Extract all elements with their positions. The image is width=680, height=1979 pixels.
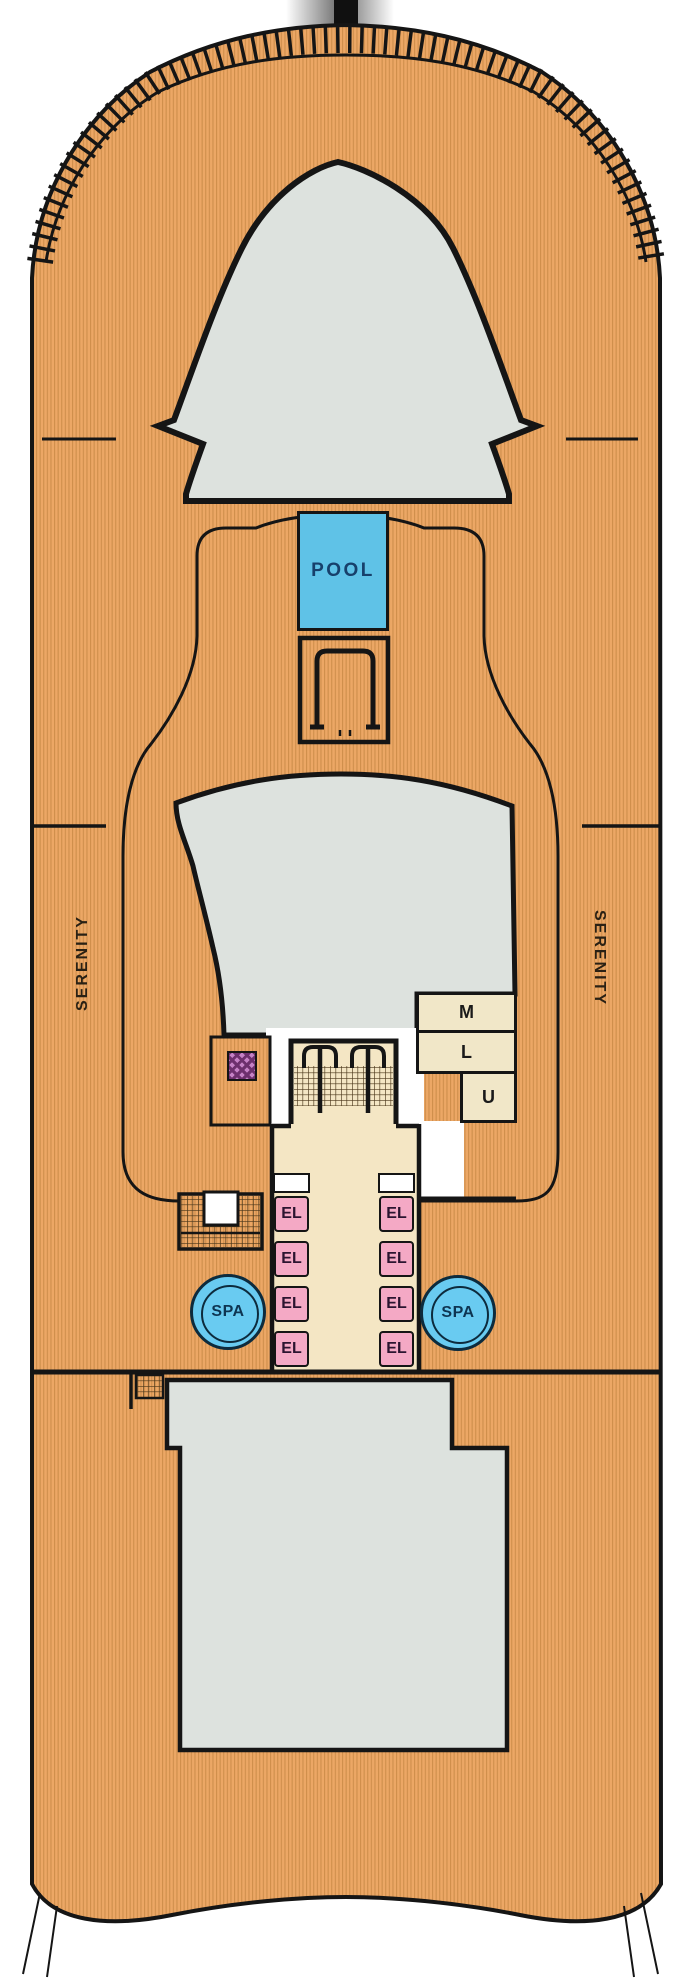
elevator-box: EL: [379, 1196, 414, 1232]
elevator-box: EL: [274, 1241, 309, 1277]
pool-label: POOL: [311, 560, 375, 582]
landing-u: U: [460, 1071, 517, 1123]
serenity-label-starboard: SERENITY: [586, 873, 608, 1043]
landing-margin: [418, 1121, 464, 1197]
elevator-label: EL: [386, 1295, 406, 1313]
ladder-box-hatch: [137, 1376, 162, 1397]
spa-label: SPA: [211, 1303, 244, 1321]
spa-icon: SPA: [420, 1275, 496, 1351]
elevator-box: EL: [379, 1331, 414, 1367]
serenity-label-port: SERENITY: [74, 878, 96, 1048]
landing-m-label: M: [459, 1002, 474, 1023]
spa-label: SPA: [441, 1304, 474, 1322]
stairwell-steps: [294, 1066, 393, 1106]
elevator-label: EL: [386, 1250, 406, 1268]
elevator-box: EL: [379, 1241, 414, 1277]
elevator-label: EL: [386, 1340, 406, 1358]
elevator-label: EL: [386, 1205, 406, 1223]
pool: POOL: [297, 511, 389, 631]
spa-icon: SPA: [190, 1274, 266, 1350]
elevator-label: EL: [281, 1250, 301, 1268]
elevator-door-right: [379, 1174, 414, 1192]
elevator-label: EL: [281, 1205, 301, 1223]
landing-u-label: U: [482, 1087, 495, 1108]
deck-plan-drawing: [0, 0, 680, 1979]
landing-l: L: [416, 1030, 517, 1074]
elevator-label: EL: [281, 1340, 301, 1358]
port-stairs-notch: [204, 1192, 238, 1225]
elevator-box: EL: [274, 1196, 309, 1232]
elevator-door-left: [274, 1174, 309, 1192]
elevator-label: EL: [281, 1295, 301, 1313]
elevator-box: EL: [274, 1331, 309, 1367]
facility-icon: [227, 1051, 257, 1081]
landing-m: M: [416, 992, 517, 1033]
elevator-box: EL: [274, 1286, 309, 1322]
ship-deck-plan: POOL M L U EL EL EL EL EL EL EL EL SPA S…: [0, 0, 680, 1979]
landing-l-label: L: [461, 1042, 472, 1063]
elevator-box: EL: [379, 1286, 414, 1322]
